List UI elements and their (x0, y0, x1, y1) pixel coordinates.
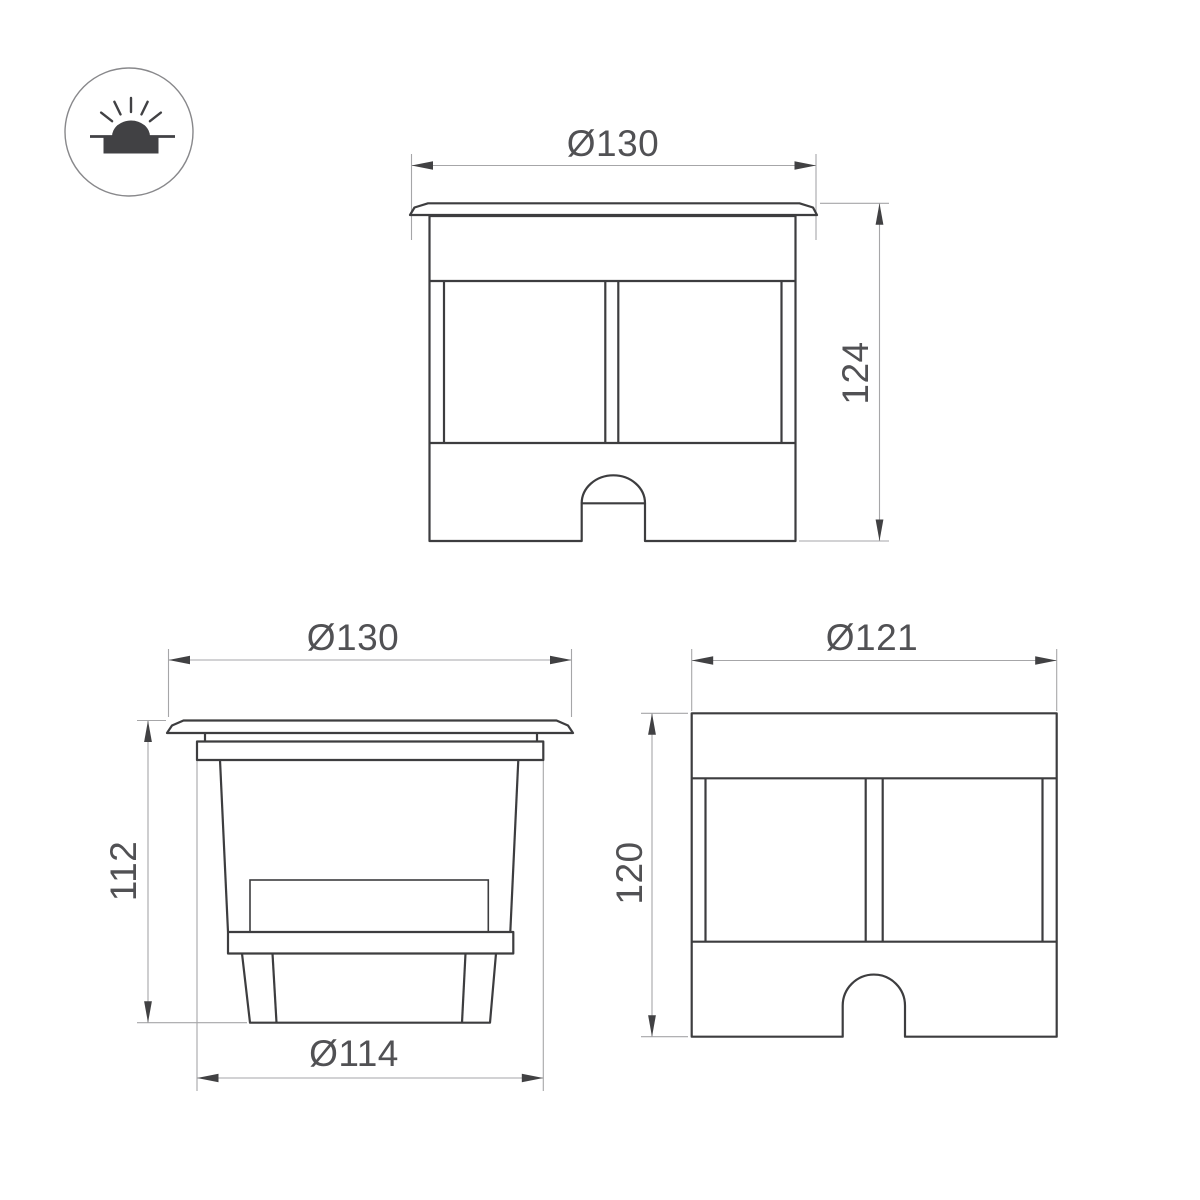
housing-view-height-label: 120 (609, 841, 650, 904)
front-view: Ø130 124 (410, 123, 889, 541)
front-view-diameter-label: Ø130 (567, 123, 660, 164)
side-heatsink-fins (250, 880, 488, 932)
side-view-body (167, 721, 573, 1023)
side-flange (167, 721, 573, 734)
side-collar (197, 742, 543, 761)
technical-drawing-sheet: Ø130 124 (0, 0, 1200, 1200)
front-body-outline (430, 216, 796, 541)
icon-recessed-body (104, 137, 159, 154)
side-view-height-label: 112 (103, 841, 144, 902)
icon-light-rays (101, 98, 161, 121)
front-view-dimension-lines (412, 154, 890, 541)
side-view: Ø130 112 Ø114 (103, 617, 573, 1091)
front-view-height-label: 124 (835, 341, 876, 404)
housing-view-diameter-label: Ø121 (826, 617, 919, 658)
front-cable-arch (582, 475, 645, 503)
side-view-base-diameter-label: Ø114 (309, 1033, 399, 1074)
front-view-body (410, 203, 817, 541)
side-view-dimension-lines (137, 649, 572, 1091)
inground-light-icon (65, 68, 193, 196)
front-view-dimension-arrows (412, 161, 884, 541)
housing-view-dimension-lines (641, 649, 1057, 1037)
front-flange (410, 203, 817, 215)
housing-view: Ø121 120 (609, 617, 1057, 1037)
side-view-diameter-label: Ø130 (307, 617, 400, 658)
icon-lamp-dome (112, 121, 150, 137)
housing-body-outline (692, 713, 1057, 1036)
side-lower-housing (242, 954, 496, 1023)
side-base-plate (228, 932, 513, 954)
housing-view-body (692, 713, 1057, 1036)
